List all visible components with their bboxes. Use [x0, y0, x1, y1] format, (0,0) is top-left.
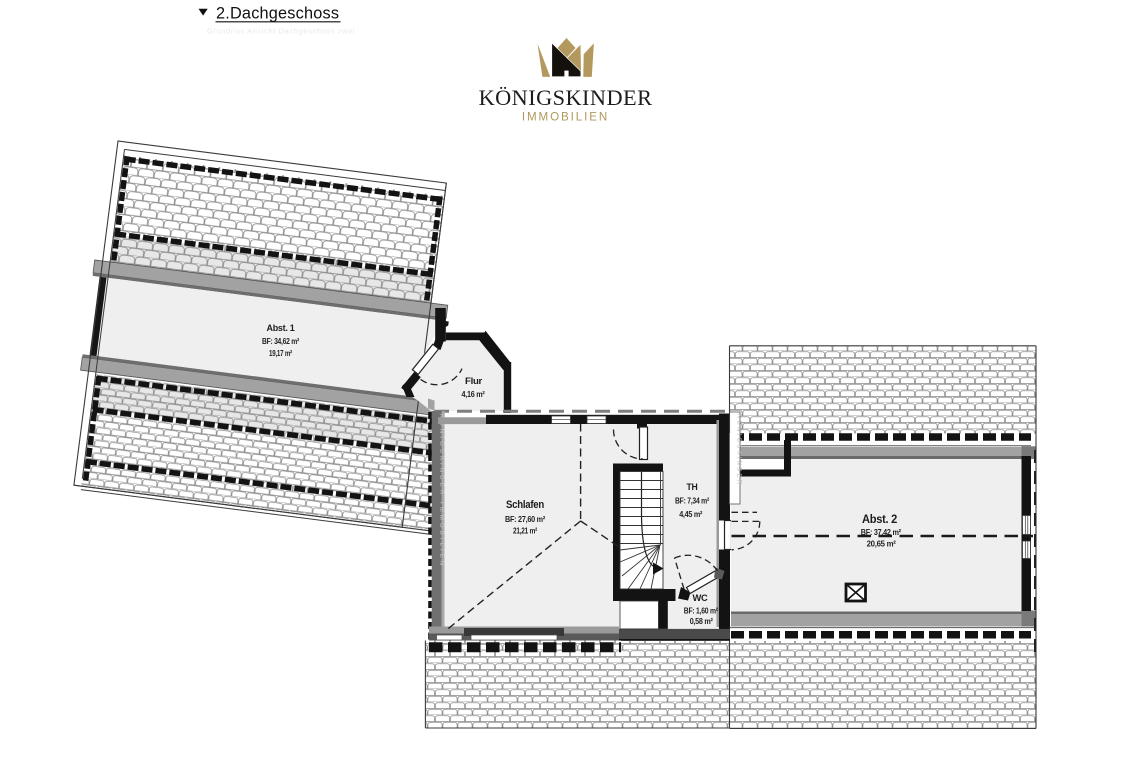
svg-text:BF: 37,42 m²: BF: 37,42 m² [861, 527, 901, 537]
svg-text:4,16 m²: 4,16 m² [462, 390, 486, 399]
svg-text:BF: 27,60 m²: BF: 27,60 m² [505, 514, 545, 524]
svg-text:20,65 m²: 20,65 m² [867, 539, 896, 549]
svg-text:KÖNIGSKINDER IMMOBILIEN: KÖNIGSKINDER IMMOBILIEN [438, 414, 445, 568]
svg-text:IMMOBILIEN: IMMOBILIEN [522, 110, 609, 123]
svg-text:BF: 1,60 m²: BF: 1,60 m² [684, 606, 718, 616]
svg-text:BF: 34,62 m²: BF: 34,62 m² [262, 337, 300, 346]
svg-text:4,45 m²: 4,45 m² [679, 509, 702, 519]
svg-text:2.Dachgeschoss: 2.Dachgeschoss [216, 4, 339, 22]
svg-text:KÖNIGSKINDER: KÖNIGSKINDER [736, 414, 743, 486]
svg-text:Abst. 1: Abst. 1 [267, 323, 296, 334]
svg-text:WC: WC [693, 593, 708, 604]
svg-text:Flur: Flur [465, 376, 483, 387]
svg-text:Schlafen: Schlafen [506, 499, 545, 511]
svg-text:Grundriss Ansicht Dachgeschoss: Grundriss Ansicht Dachgeschoss zwei [207, 27, 355, 36]
svg-text:TH: TH [687, 482, 698, 493]
svg-text:Abst. 2: Abst. 2 [862, 514, 897, 526]
svg-text:BF: 7,34 m²: BF: 7,34 m² [675, 496, 709, 506]
svg-text:KÖNIGSKINDER: KÖNIGSKINDER [479, 85, 653, 110]
svg-text:19,17 m²: 19,17 m² [269, 349, 292, 358]
svg-text:0,58 m²: 0,58 m² [690, 616, 713, 626]
svg-text:21,21 m²: 21,21 m² [513, 526, 537, 536]
